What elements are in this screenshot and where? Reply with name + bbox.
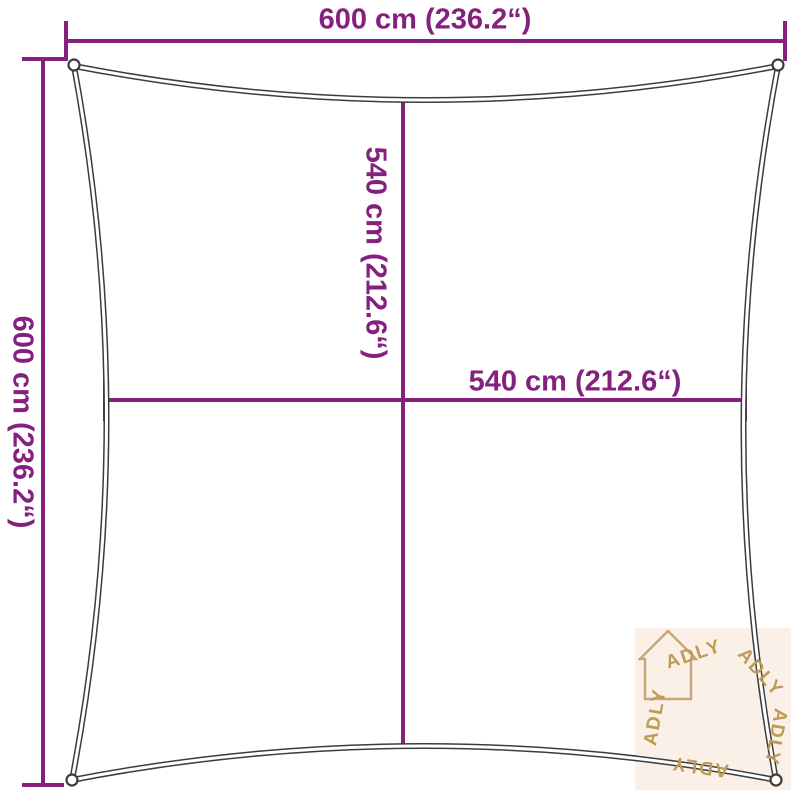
dimension-label-top-width: 600 cm (236.2“) [319,4,532,37]
dimension-label-left-height: 600 cm (236.2“) [6,316,39,529]
sail-drawing [0,0,800,800]
dimension-label-inner-height: 540 cm (212.6“) [359,147,392,360]
corner-ring-top-left [69,60,80,71]
dimension-diagram: 600 cm (236.2“) 600 cm (236.2“) 540 cm (… [0,0,800,800]
corner-rings [67,60,784,786]
dimension-label-inner-width: 540 cm (212.6“) [469,366,682,399]
corner-ring-top-right [773,60,784,71]
corner-ring-bottom-left [67,775,78,786]
corner-ring-bottom-right [771,775,782,786]
